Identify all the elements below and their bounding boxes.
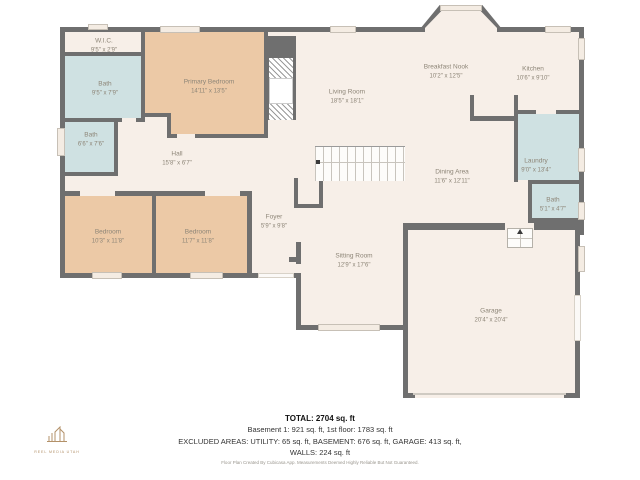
wall-segment [514,110,536,114]
window-marker [578,148,585,172]
wall-segment [319,178,323,208]
staircase-rail-line [315,162,405,163]
house-logo-icon [46,426,68,444]
room-label-laundry: Laundry 9'0" x 13'4" [521,156,551,175]
wall-segment [528,218,584,223]
wall-segment [60,27,425,32]
room-label-dining-area: Dining Area 11'6" x 12'11" [434,167,469,186]
wall-segment [115,191,205,196]
window-marker [578,38,585,60]
wall-segment [114,122,118,176]
fireplace-hatch [269,104,293,120]
wall-segment [289,257,296,262]
room-label-bedroom-right: Bedroom 11'7" x 11'8" [182,227,214,246]
area-summary: TOTAL: 2704 sq. ft Basement 1: 921 sq. f… [0,414,640,465]
logo-text: REEL MEDIA UTAH [24,450,90,454]
wall-segment [136,118,145,122]
disclaimer-text: Floor Plan Created By Cubicasa App. Meas… [0,460,640,465]
floorplan-page: W.I.C. 9'5" x 2'9" Bath 9'5" x 7'9" Bath… [0,0,640,480]
room-label-primary-bedroom: Primary Bedroom 14'11" x 13'5" [184,77,235,96]
stair-tread-line [508,238,532,239]
window-marker [88,24,108,30]
wall-segment [293,58,296,120]
wall-segment [60,191,80,196]
window-marker [578,202,585,220]
window-marker [190,272,223,279]
wall-segment [528,184,532,222]
wall-segment [152,196,156,273]
wall-segment [296,273,301,330]
window-marker [57,128,65,156]
window-marker [92,272,122,279]
room-label-bedroom-left: Bedroom 10'3" x 11'8" [92,227,124,246]
wall-segment [195,134,268,138]
room-label-sitting-room: Sitting Room 12'9" x 17'6" [335,251,372,270]
wall-segment [60,118,122,122]
window-marker [330,26,356,33]
room-label-bath-upper: Bath 9'5" x 7'9" [92,79,118,98]
room-label-bath-mid: Bath 6'6" x 7'6" [78,130,104,149]
wall-segment [403,225,408,398]
wall-segment [470,116,518,121]
stair-arrow-icon [517,229,523,234]
room-label-garage: Garage 20'4" x 20'4" [475,306,508,325]
room-label-wic: W.I.C. 9'5" x 2'9" [91,36,117,55]
window-marker [545,26,571,33]
room-label-kitchen: Kitchen 10'6" x 9'10" [517,64,550,83]
garage-side-door [574,295,581,341]
wall-segment [60,172,118,176]
fireplace-hatch [269,58,293,78]
wall-segment [556,110,579,114]
wall-segment [403,223,505,230]
front-door [258,273,294,278]
wall-segment [528,180,579,184]
wall-segment [167,134,177,138]
room-label-breakfast-nook: Breakfast Nook 10'2" x 12'5" [424,62,468,81]
reel-media-utah-logo: REEL MEDIA UTAH [24,426,90,454]
room-label-foyer: Foyer 5'9" x 9'8" [261,212,287,231]
room-label-living-room: Living Room 18'5" x 18'1" [329,87,365,106]
wall-segment [141,27,145,122]
bay-window-glass-icon [440,5,482,11]
staircase-direction-icon [316,160,320,164]
fireplace-block [266,36,296,58]
staircase-main [315,146,405,181]
window-marker [318,324,380,331]
fireplace-niche [269,78,293,104]
room-label-bath-small: Bath 5'1" x 4'7" [540,195,566,214]
excluded-area-text: EXCLUDED AREAS: UTILITY: 65 sq. ft, BASE… [0,437,640,446]
floors-area-text: Basement 1: 921 sq. ft, 1st floor: 1783 … [0,425,640,434]
wall-segment [296,242,301,264]
walls-area-text: WALLS: 224 sq. ft [0,448,640,457]
wall-segment [564,393,580,398]
primary-bedroom-entry-nook [145,117,167,134]
garage-door-line [413,393,566,395]
wall-segment [534,223,584,230]
room-label-hall: Hall 15'8" x 6'7" [162,149,192,168]
wall-segment [247,191,252,278]
wall-segment [60,273,260,278]
wall-segment [514,110,518,182]
window-marker [578,246,585,272]
total-area-text: TOTAL: 2704 sq. ft [0,414,640,423]
window-marker [160,26,200,33]
